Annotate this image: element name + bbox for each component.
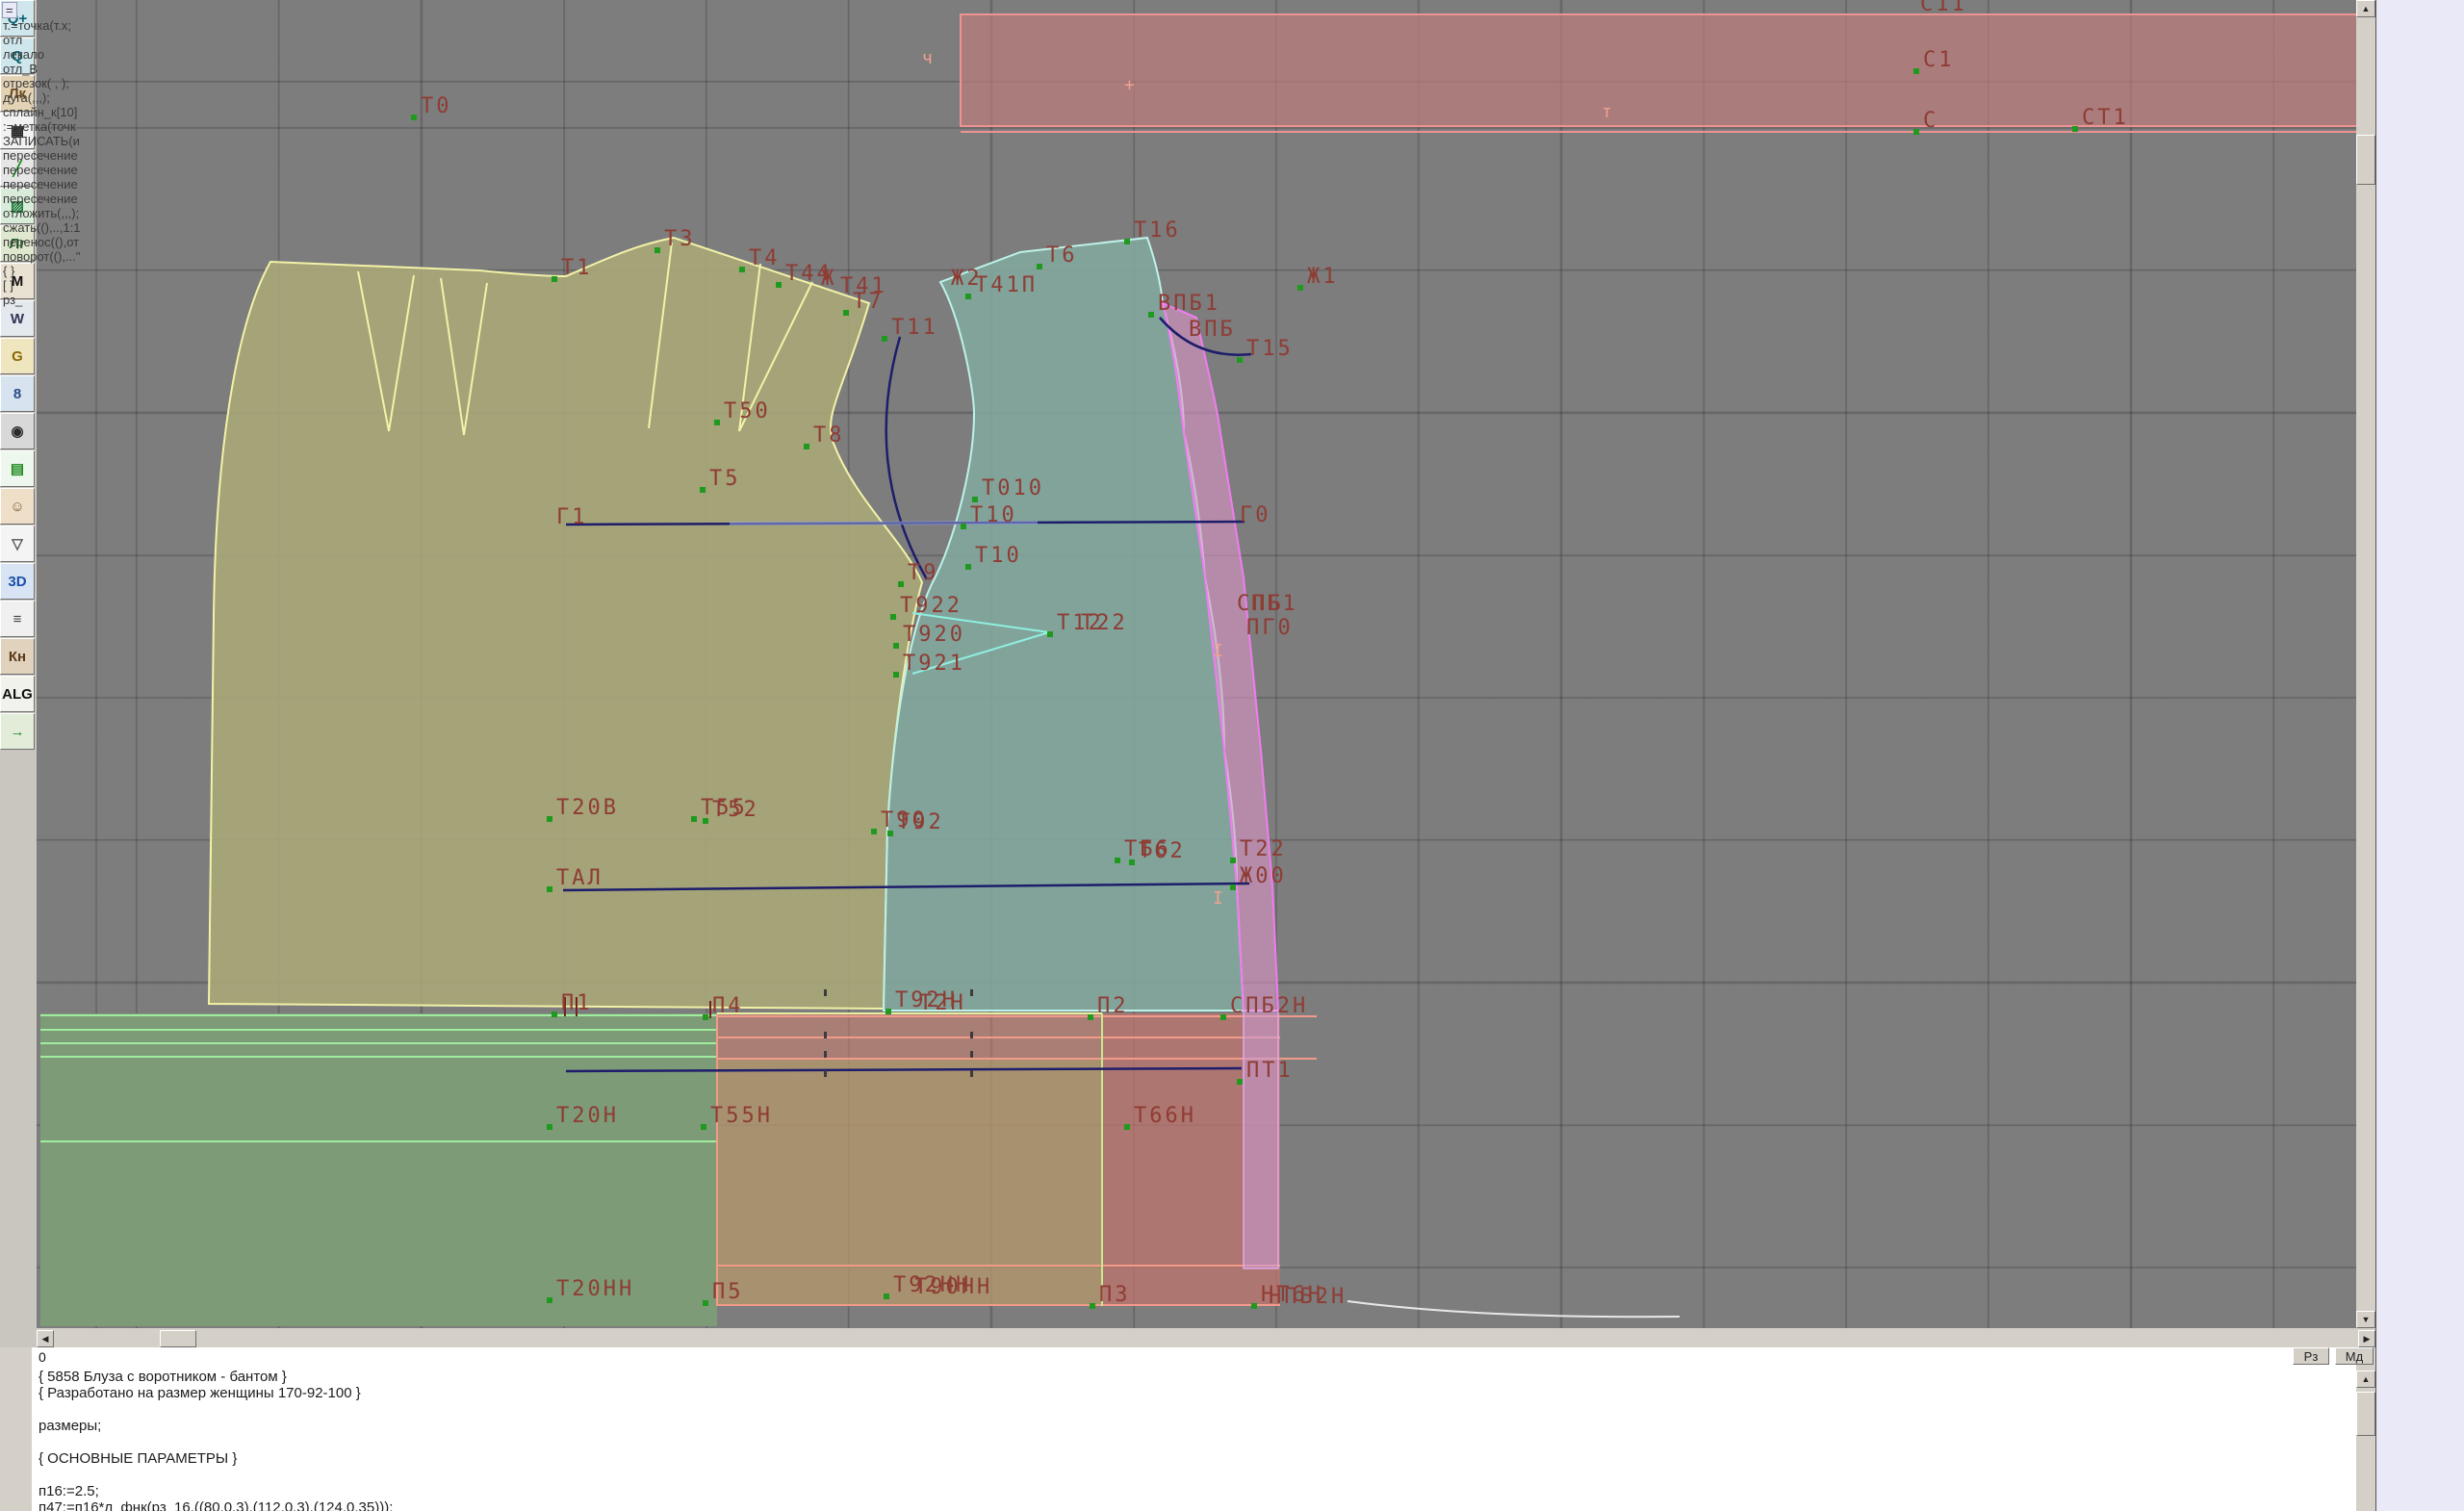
point-label: Т22 — [1240, 839, 1287, 860]
point-label: Т62 — [1139, 841, 1186, 862]
point-label: ПТ1 — [1246, 1061, 1294, 1082]
point-marker — [893, 643, 899, 649]
point-marker — [552, 1012, 557, 1017]
point-label: Т2Н — [919, 993, 966, 1014]
point-label: НПБ2Н — [1269, 1287, 1347, 1308]
hscroll-thumb[interactable] — [160, 1330, 196, 1347]
command-item[interactable]: отрезок( , ); — [3, 76, 2464, 90]
command-item[interactable]: пересечение — [3, 148, 2464, 163]
point-label: Г0 — [1240, 505, 1271, 526]
alg-icon[interactable]: ALG — [0, 676, 35, 712]
point-label: Т920 — [903, 625, 965, 646]
alg-icon: ALG — [2, 687, 33, 702]
text-list-icon: ≡ — [13, 612, 22, 627]
point-marker — [887, 831, 893, 836]
point-marker — [871, 829, 877, 834]
source-line — [38, 1401, 393, 1418]
point-label: Т50 — [724, 401, 771, 423]
source-text-lines: { 5858 Блуза с воротником - бантом }{ Ра… — [38, 1369, 393, 1511]
point-label: Т66Н — [1134, 1106, 1196, 1127]
point-label: Т8 — [813, 425, 845, 447]
command-item[interactable]: сплайн_к[10] — [3, 105, 2464, 119]
point-marker — [1047, 631, 1053, 637]
portrait-icon[interactable]: ☺ — [0, 488, 35, 525]
source-line — [38, 1467, 393, 1483]
point-label: П5 — [712, 1282, 744, 1303]
notch-mark: І — [1213, 890, 1223, 908]
point-label: Т90НН — [914, 1277, 992, 1298]
text-list-icon[interactable]: ≡ — [0, 601, 35, 637]
point-label: ТАЛ — [556, 868, 603, 889]
command-item[interactable]: сжать((),..,1:1 — [3, 220, 2464, 235]
3d-icon[interactable]: 3D — [0, 563, 35, 600]
point-label: Т5 — [709, 469, 741, 490]
point-label: Т9 — [908, 563, 939, 584]
md-button[interactable]: Мд — [2335, 1347, 2374, 1365]
command-item[interactable]: пересечение — [3, 177, 2464, 192]
point-label: П1 — [561, 993, 593, 1014]
command-panel-header[interactable]: = — [2, 2, 17, 18]
point-label: Т010 — [982, 478, 1044, 499]
point-label: Т921 — [903, 653, 965, 675]
point-marker — [890, 614, 896, 620]
compass-icon: W — [11, 312, 24, 326]
command-item[interactable]: лекало — [3, 47, 2464, 62]
point-marker — [884, 1293, 889, 1299]
source-line: { Разработано на размер женщины 170-92-1… — [38, 1385, 393, 1401]
ruler-icon: 8 — [13, 387, 21, 401]
point-label: Т922 — [900, 596, 962, 617]
canvas-hscrollbar[interactable]: ◀ ▶ — [37, 1330, 2375, 1347]
command-list: т.=точка(т.х;отллекалоотл_Вотрезок( , );… — [3, 18, 2464, 307]
point-label: П2 — [1097, 996, 1129, 1017]
point-marker — [714, 420, 720, 425]
command-item[interactable]: т.=точка(т.х; — [3, 18, 2464, 33]
rz-button[interactable]: Рз — [2293, 1347, 2329, 1365]
point-label: Т92 — [897, 812, 944, 833]
point-marker — [1129, 859, 1135, 865]
point-marker — [1124, 1124, 1130, 1130]
source-line: { ОСНОВНЫЕ ПАРАМЕТРЫ } — [38, 1450, 393, 1467]
point-label: Т10 — [975, 546, 1022, 567]
command-item[interactable]: дуга(,,,); — [3, 90, 2464, 105]
point-marker — [691, 816, 697, 822]
point-label: Т22 — [1081, 613, 1128, 634]
books-icon: Кн — [9, 650, 26, 664]
ruler-icon[interactable]: 8 — [0, 375, 35, 412]
point-marker — [898, 581, 904, 587]
text-scroll-up-icon[interactable]: ▲ — [2356, 1370, 2375, 1388]
command-item[interactable]: отложить(,,,); — [3, 206, 2464, 220]
point-marker — [965, 564, 971, 570]
command-item[interactable]: поворот((),..." — [3, 249, 2464, 264]
bottom-left-margin — [0, 1347, 32, 1511]
point-label: ВПБ — [1189, 320, 1236, 341]
point-label: Т20В — [556, 798, 619, 819]
garment-icon: ▽ — [12, 537, 23, 551]
point-marker — [804, 444, 809, 449]
3d-icon: 3D — [8, 575, 26, 589]
command-item[interactable]: { } — [3, 264, 2464, 278]
point-marker — [1251, 1303, 1257, 1309]
point-marker — [893, 672, 899, 678]
camera-icon: ◉ — [11, 424, 23, 439]
text-vscrollbar[interactable]: ▲ — [2356, 1369, 2375, 1511]
exit-icon: → — [11, 725, 25, 739]
point-marker — [703, 818, 708, 824]
point-marker — [1148, 312, 1154, 318]
portrait-icon: ☺ — [10, 499, 24, 514]
point-marker — [700, 487, 706, 493]
point-marker — [961, 524, 966, 529]
command-item[interactable]: рз_ — [3, 293, 2464, 307]
point-label: Т52 — [712, 800, 759, 821]
point-label: Т11 — [891, 318, 938, 339]
table-icon[interactable]: ▤ — [0, 450, 35, 487]
scroll-down-icon[interactable]: ▼ — [2356, 1311, 2375, 1328]
point-marker — [882, 336, 887, 342]
command-item[interactable]: :=метка(точк — [3, 119, 2464, 134]
g-tool-icon[interactable]: G — [0, 338, 35, 374]
point-marker — [547, 1297, 552, 1303]
scroll-right-icon[interactable]: ▶ — [2358, 1330, 2375, 1347]
command-item[interactable]: отл_В — [3, 62, 2464, 76]
status-value: 0 — [38, 1349, 46, 1365]
point-label: Т15 — [1246, 339, 1294, 360]
point-marker — [703, 1014, 708, 1020]
source-line: п47:=п16*л фнк(рз 16,((80,0.3),(112,0.3)… — [38, 1499, 393, 1511]
point-label: Т10 — [970, 505, 1017, 526]
source-line — [38, 1434, 393, 1450]
source-line: п16:=2.5; — [38, 1483, 393, 1499]
point-marker — [547, 816, 552, 822]
point-marker — [701, 1124, 706, 1130]
table-icon: ▤ — [11, 462, 24, 476]
point-marker — [1237, 357, 1243, 363]
point-label: ПГ0 — [1246, 618, 1294, 639]
point-marker — [1237, 1079, 1243, 1085]
command-item[interactable]: пересечение — [3, 192, 2464, 206]
source-line: { 5858 Блуза с воротником - бантом } — [38, 1369, 393, 1385]
point-label: С11 — [1920, 0, 1967, 15]
point-label: ПБ1 — [1251, 594, 1298, 615]
app-window: Q+QЛк▦╱▨ЛгMWG8◉▤☺▽3D≡КнALG→ — [0, 0, 2464, 1511]
command-item[interactable]: [ ] — [3, 278, 2464, 293]
point-marker — [1088, 1014, 1093, 1020]
point-label: П4 — [712, 996, 744, 1017]
g-tool-icon: G — [12, 349, 23, 364]
garment-icon[interactable]: ▽ — [0, 525, 35, 562]
command-item[interactable]: ЗАПИСАТЬ(и — [3, 134, 2464, 148]
point-marker — [1230, 884, 1236, 890]
point-label: СПБ2Н — [1230, 996, 1308, 1017]
point-label: Т55Н — [710, 1106, 773, 1127]
point-marker — [1090, 1303, 1095, 1309]
point-label: Ж00 — [1240, 866, 1287, 887]
notch-mark: І — [1213, 643, 1223, 660]
command-item[interactable]: отл — [3, 33, 2464, 47]
point-marker — [547, 886, 552, 892]
text-vscroll-thumb[interactable] — [2356, 1392, 2375, 1436]
point-marker — [1230, 858, 1236, 863]
point-marker — [1220, 1014, 1226, 1020]
source-line: размеры; — [38, 1418, 393, 1434]
point-label: Т20Н — [556, 1106, 619, 1127]
point-marker — [885, 1009, 891, 1014]
camera-icon[interactable]: ◉ — [0, 413, 35, 449]
point-label: Г1 — [556, 507, 588, 528]
scroll-left-icon[interactable]: ◀ — [37, 1330, 54, 1347]
command-item[interactable]: пересечение — [3, 163, 2464, 177]
scroll-up-icon[interactable]: ▲ — [2356, 0, 2375, 17]
point-marker — [703, 1300, 708, 1306]
command-item[interactable]: перенос((),от — [3, 235, 2464, 249]
point-label: П3 — [1099, 1285, 1131, 1306]
point-marker — [1115, 858, 1120, 863]
point-marker — [972, 497, 978, 502]
exit-icon[interactable]: → — [0, 713, 35, 750]
point-marker — [843, 310, 849, 316]
point-marker — [547, 1124, 552, 1130]
books-icon[interactable]: Кн — [0, 638, 35, 675]
point-label: Т20НН — [556, 1279, 634, 1300]
